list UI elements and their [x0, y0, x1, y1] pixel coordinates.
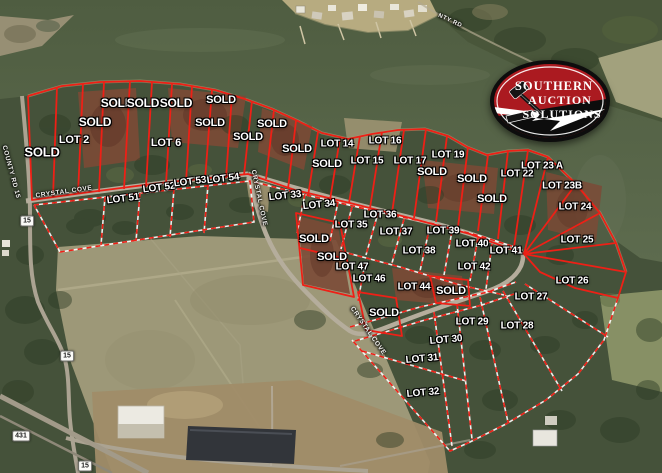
lot-label-lot-41: LOT 41: [490, 246, 523, 257]
lot-label-lot-37: LOT 37: [380, 227, 413, 238]
lot-label-lot-32: LOT 32: [406, 386, 440, 400]
sold-label: SOLD: [312, 158, 342, 170]
lot-label-lot-34: LOT 34: [302, 198, 336, 212]
route-badge-15: 15: [78, 461, 92, 472]
sold-label: SOLD: [369, 307, 399, 319]
sold-label: SOLD: [299, 233, 329, 245]
lot-label-lot-24: LOT 24: [559, 202, 592, 213]
lot-label-lot-51: LOT 51: [106, 192, 140, 207]
sold-label: SOLD: [257, 118, 287, 130]
road-name-label: CRYSTAL COVE: [35, 185, 93, 200]
sold-label: SOLD: [282, 143, 312, 155]
road-name-label: CRYSTAL COVE: [250, 169, 269, 226]
lot-label-lot-52: LOT 52: [142, 181, 176, 196]
road-name-label: COUNTY RD 15: [1, 145, 22, 200]
lot-label-lot-23-a: LOT 23 A: [521, 161, 563, 172]
lot-label-lot-17: LOT 17: [394, 156, 427, 167]
lot-label-lot-30: LOT 30: [429, 333, 463, 347]
lot-label-lot-54: LOT 54: [206, 172, 240, 187]
lot-label-lot-6: LOT 6: [151, 137, 181, 149]
sold-label: SOLD: [457, 173, 487, 185]
sold-label: SOLD: [417, 166, 447, 178]
logo-line-3: SOLUTIONS: [522, 107, 601, 121]
lot-label-lot-44: LOT 44: [398, 282, 431, 293]
sold-label: SOLD: [79, 115, 112, 129]
lot-label-lot-42: LOT 42: [458, 262, 491, 273]
lot-label-lot-31: LOT 31: [405, 352, 439, 366]
sold-label: SOLD: [436, 285, 466, 297]
lot-label-lot-33: LOT 33: [268, 189, 302, 203]
auction-plat-map: SOLDLOT 2SOLDSOLDSOLDSOLDLOT 6SOLDSOLDSO…: [0, 0, 662, 473]
lot-label-lot-47: LOT 47: [336, 262, 369, 273]
lot-label-lot-39: LOT 39: [427, 226, 460, 237]
sold-label: SOLD: [127, 96, 160, 110]
lot-label-lot-2: LOT 2: [59, 134, 89, 146]
lot-label-lot-25: LOT 25: [561, 235, 594, 246]
lot-label-lot-15: LOT 15: [351, 156, 384, 167]
lot-label-lot-23b: LOT 23B: [542, 181, 582, 192]
sold-label: SOLD: [160, 96, 193, 110]
lot-label-lot-35: LOT 35: [335, 220, 368, 231]
lot-label-lot-28: LOT 28: [501, 321, 534, 332]
sold-label: SOLD: [195, 117, 225, 129]
lot-label-lot-38: LOT 38: [403, 246, 436, 257]
sold-label: SOLD: [24, 145, 59, 160]
logo-line-2: AUCTION: [528, 93, 592, 107]
lot-label-lot-40: LOT 40: [456, 239, 489, 250]
logo-line-1: SOUTHERN: [515, 79, 593, 93]
lot-label-lot-19: LOT 19: [432, 150, 465, 161]
lot-label-lot-16: LOT 16: [369, 136, 402, 147]
lot-label-lot-27: LOT 27: [515, 292, 548, 303]
lot-label-lot-53: LOT 53: [173, 175, 207, 190]
sold-label: SOLD: [206, 94, 236, 106]
route-badge-15: 15: [20, 216, 34, 227]
route-badge-431: 431: [12, 431, 30, 442]
road-name-label: NTY RD: [437, 13, 463, 29]
company-logo: SOUTHERN AUCTION SOLUTIONS: [488, 58, 612, 144]
lot-label-lot-36: LOT 36: [364, 210, 397, 221]
lot-label-lot-29: LOT 29: [456, 317, 489, 328]
route-badge-15: 15: [60, 351, 74, 362]
lot-label-lot-26: LOT 26: [556, 276, 589, 287]
lot-label-lot-46: LOT 46: [353, 274, 386, 285]
sold-label: SOLD: [233, 131, 263, 143]
lot-label-lot-14: LOT 14: [321, 139, 354, 150]
sold-label: SOLD: [477, 193, 507, 205]
